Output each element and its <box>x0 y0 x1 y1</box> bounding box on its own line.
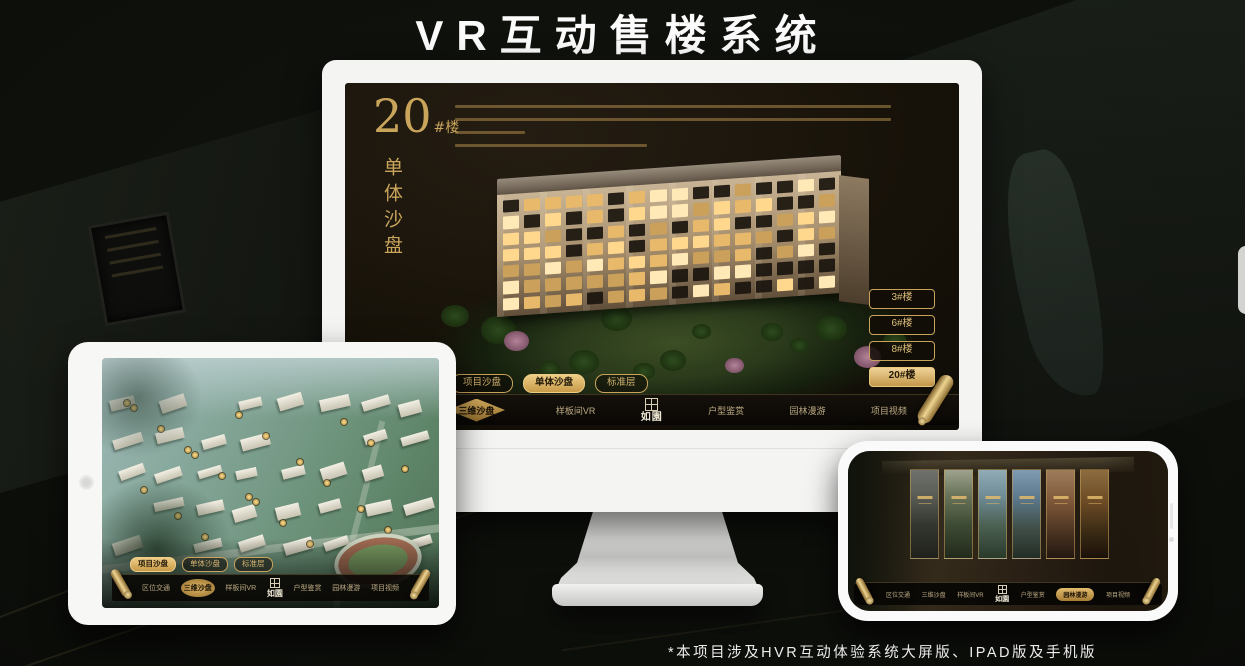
scene-card[interactable] <box>910 469 939 559</box>
background-device-edge <box>1238 246 1245 314</box>
monitor-stand-base <box>552 584 763 606</box>
nav-item-garden-tour[interactable]: 园林漫游 <box>1056 588 1094 601</box>
tablet-screen: 项目沙盘 单体沙盘 标准层 区位交通 三维沙盘 样板间VR 如園 户型鉴赏 园林… <box>102 358 439 608</box>
tablet-navbar: 区位交通 三维沙盘 样板间VR 如園 户型鉴赏 园林漫游 项目视频 <box>112 574 429 601</box>
nav-item-project-video[interactable]: 项目视频 <box>371 583 399 593</box>
brand-logo-text: 如園 <box>267 590 283 598</box>
description-text-lines <box>455 105 891 157</box>
floor-button-group: 3#楼 6#楼 8#楼 20#楼 <box>869 289 935 387</box>
brand-logo-text: 如園 <box>995 596 1009 603</box>
brand-logo: 如園 <box>995 585 1009 603</box>
nav-item-floorplans[interactable]: 户型鉴赏 <box>294 583 322 593</box>
subtab-single-sandtable[interactable]: 单体沙盘 <box>523 374 585 393</box>
building-subtitle-vertical: 单体沙盘 <box>379 157 406 297</box>
background-river <box>986 144 1124 406</box>
background-placard <box>88 212 186 327</box>
phone-screen: 区位交通 三维沙盘 样板间VR 如園 户型鉴赏 园林漫游 项目视频 <box>848 451 1168 611</box>
nav-item-garden-tour[interactable]: 园林漫游 <box>332 583 360 593</box>
nav-item-location[interactable]: 区位交通 <box>142 583 170 593</box>
floor-button-8[interactable]: 8#楼 <box>869 341 935 361</box>
phone-earpiece <box>1170 503 1173 529</box>
nav-item-showroom-vr[interactable]: 样板间VR <box>225 583 256 593</box>
nav-item-floorplans[interactable]: 户型鉴赏 <box>1021 590 1045 599</box>
nav-item-floorplans[interactable]: 户型鉴赏 <box>708 404 744 417</box>
phone-device: 区位交通 三维沙盘 样板间VR 如園 户型鉴赏 园林漫游 项目视频 <box>838 441 1178 621</box>
scene-card[interactable] <box>1012 469 1041 559</box>
seal-icon <box>270 578 280 588</box>
camera-icon <box>1169 537 1174 542</box>
scene-card[interactable] <box>1080 469 1109 559</box>
floor-button-3[interactable]: 3#楼 <box>869 289 935 309</box>
nav-item-showroom-vr[interactable]: 样板间VR <box>556 404 596 417</box>
brand-logo-text: 如園 <box>641 413 663 423</box>
floor-button-20[interactable]: 20#楼 <box>869 367 935 387</box>
nav-item-location[interactable]: 区位交通 <box>886 590 910 599</box>
building-facade <box>497 171 841 317</box>
phone-navbar: 区位交通 三维沙盘 样板间VR 如園 户型鉴赏 园林漫游 项目视频 <box>854 582 1162 605</box>
nav-item-project-video[interactable]: 项目视频 <box>871 404 907 417</box>
seal-icon <box>998 585 1007 594</box>
brand-logo: 如園 <box>641 398 663 423</box>
subtab-project-sandtable[interactable]: 项目沙盘 <box>130 557 176 572</box>
page-title: VR互动售楼系统 <box>0 2 1245 63</box>
footnote-text: *本项目涉及HVR互动体验系统大屏版、IPAD版及手机版 <box>668 641 1097 662</box>
brand-logo: 如園 <box>267 578 283 598</box>
building-end-wall <box>839 175 869 305</box>
camera-icon <box>79 475 94 490</box>
scene-card-gallery <box>910 469 1109 559</box>
nav-item-3d-sandtable[interactable]: 三维沙盘 <box>922 590 946 599</box>
scene-card[interactable] <box>1046 469 1075 559</box>
monitor-subtabs: 项目沙盘 单体沙盘 标准层 <box>451 374 648 393</box>
tablet-device: 项目沙盘 单体沙盘 标准层 区位交通 三维沙盘 样板间VR 如園 户型鉴赏 园林… <box>68 342 456 625</box>
scene-card[interactable] <box>978 469 1007 559</box>
nav-item-project-video[interactable]: 项目视频 <box>1106 590 1130 599</box>
subtab-single-sandtable[interactable]: 单体沙盘 <box>182 557 228 572</box>
stage: VR互动售楼系统 20#楼 单体沙盘 3#楼 6#楼 8#楼 20#楼 <box>0 0 1245 666</box>
tablet-subtabs: 项目沙盘 单体沙盘 标准层 <box>130 557 273 572</box>
nav-item-garden-tour[interactable]: 园林漫游 <box>790 404 826 417</box>
subtab-project-sandtable[interactable]: 项目沙盘 <box>451 374 513 393</box>
building-number: 20 <box>373 89 432 143</box>
building-headline: 20#楼 <box>373 93 459 139</box>
subtab-standard-floor[interactable]: 标准层 <box>595 374 648 393</box>
nav-item-3d-sandtable[interactable]: 三维沙盘 <box>181 579 215 597</box>
subtab-standard-floor[interactable]: 标准层 <box>234 557 273 572</box>
monitor-stand <box>557 511 758 587</box>
scene-card[interactable] <box>944 469 973 559</box>
nav-item-showroom-vr[interactable]: 样板间VR <box>957 590 983 599</box>
seal-icon <box>645 398 658 411</box>
floor-button-6[interactable]: 6#楼 <box>869 315 935 335</box>
